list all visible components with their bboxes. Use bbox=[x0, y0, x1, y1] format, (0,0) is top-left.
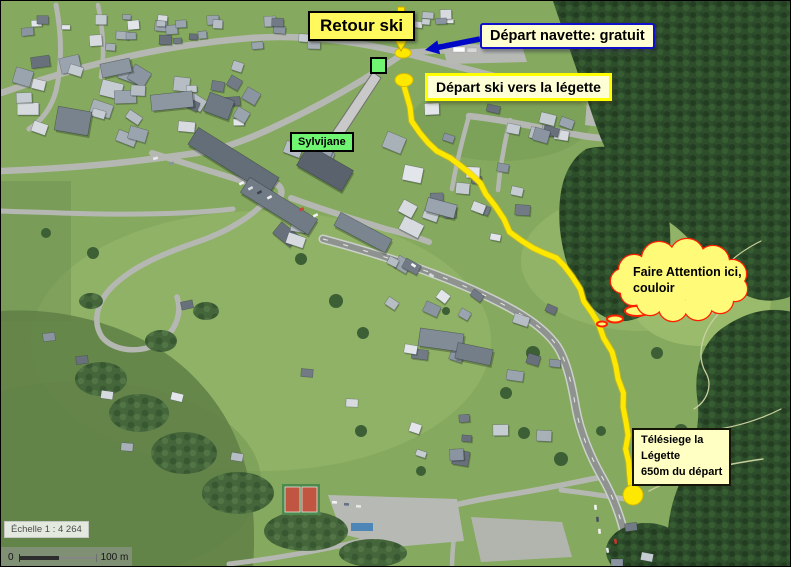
warning-line-1: Faire Attention ici, bbox=[633, 265, 742, 281]
telesiege-line-3: 650m du départ bbox=[641, 465, 722, 481]
scale-bar-segment-light bbox=[59, 557, 96, 560]
warning-line-2: couloir bbox=[633, 281, 742, 297]
scale-bar-line bbox=[19, 554, 97, 562]
scale-bar-max: 100 m bbox=[101, 552, 129, 563]
label-telesiege: Télésiege la Légette 650m du départ bbox=[632, 428, 731, 486]
label-depart-navette: Départ navette: gratuit bbox=[480, 23, 655, 49]
telesiege-line-2: Légette bbox=[641, 449, 722, 465]
label-retour-ski: Retour ski bbox=[308, 11, 415, 41]
label-sylvijane: Sylvijane bbox=[290, 132, 354, 152]
sylvijane-marker bbox=[371, 58, 386, 73]
shuttle-stop-marker bbox=[395, 48, 411, 58]
scale-text: Échelle 1 : 4 264 bbox=[4, 521, 89, 538]
map-canvas[interactable]: Retour ski Départ navette: gratuit Dépar… bbox=[0, 0, 791, 567]
route-path-outline bbox=[404, 86, 631, 485]
scale-bar-segment-dark bbox=[19, 556, 59, 560]
telesiege-end-marker bbox=[623, 485, 643, 505]
label-depart-ski: Départ ski vers la légette bbox=[425, 73, 612, 101]
ski-start-marker bbox=[395, 74, 413, 87]
telesiege-line-1: Télésiege la bbox=[641, 433, 722, 449]
callout-arrow-icon bbox=[332, 72, 381, 133]
warning-cloud-text: Faire Attention ici, couloir bbox=[633, 265, 742, 296]
pointer-arrow-icon bbox=[425, 36, 481, 54]
scale-bar: 0 100 m bbox=[1, 547, 132, 567]
route-path bbox=[404, 86, 631, 485]
scale-bar-zero: 0 bbox=[8, 552, 14, 563]
